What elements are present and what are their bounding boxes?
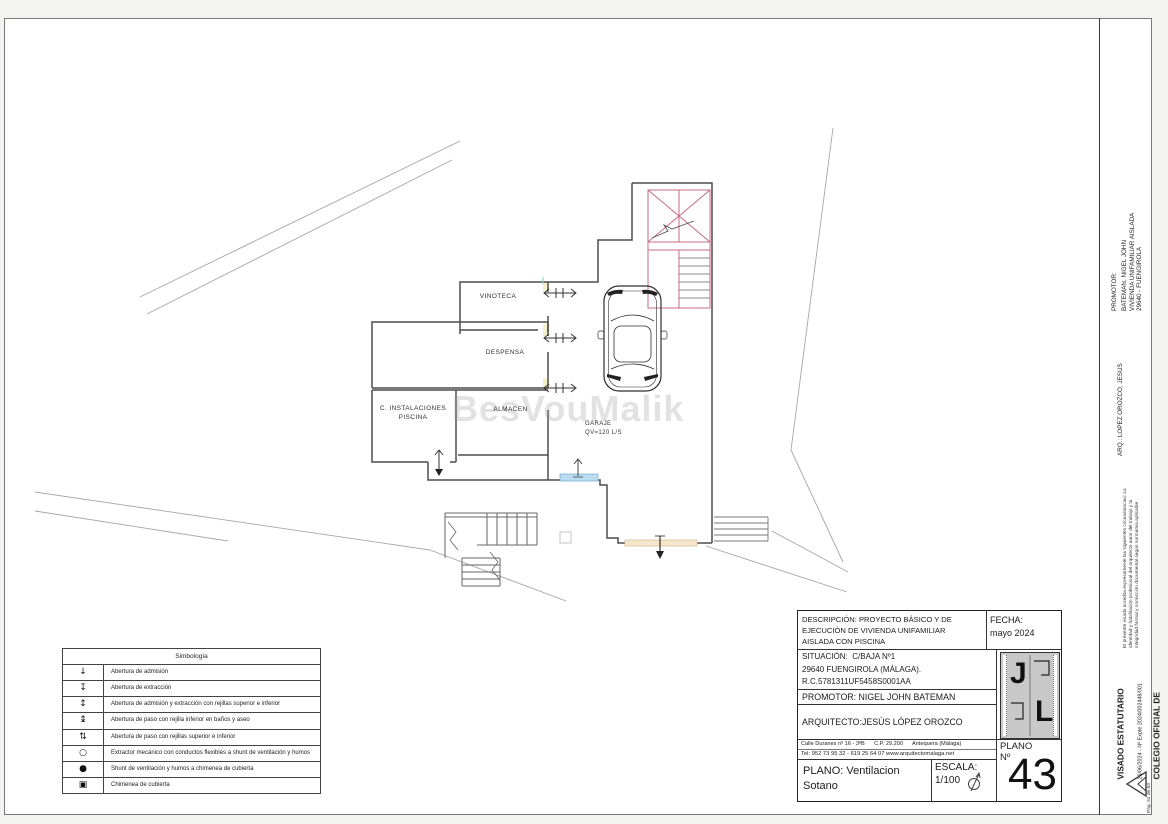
legend-row: ↧Abertura de extracción — [63, 681, 320, 697]
legend-row: ⇅Abertura de paso con rejillas superior … — [63, 730, 320, 746]
divider — [798, 739, 1061, 740]
page-number: Pág. 52 de 63 — [1147, 753, 1155, 813]
situacion-line1: SITUACIÓN: C/BAJA Nº1 — [802, 652, 895, 661]
side-promotor-label: PROMOTOR: — [1111, 121, 1119, 311]
side-architect-block: ARQ.: LOPEZ OROZCO, JESUS — [1117, 296, 1127, 456]
pass-grilles-icon: ⇅ — [63, 730, 104, 745]
vent-symbol-despensa — [544, 333, 576, 343]
site-boundary-lines — [35, 128, 848, 601]
escala-value: 1/100 — [935, 775, 960, 786]
promotor-cell: PROMOTOR: NIGEL JOHN BATEMAN — [802, 692, 955, 702]
divider — [798, 759, 996, 760]
divider — [931, 759, 932, 801]
legend-title: Simbología — [63, 649, 320, 665]
chimney-icon: ▣ — [63, 778, 104, 793]
legend-row: ▣Chimenea de cubierta — [63, 778, 320, 793]
visado-title: VISADO ESTATUTARIO — [1116, 688, 1126, 779]
exterior-stair-bottom — [445, 513, 537, 586]
corridor-arrows — [435, 450, 443, 476]
divider — [798, 704, 996, 705]
legend-table: Simbología ↓Abertura de admisión ↧Abertu… — [62, 648, 321, 794]
situacion-line2: 29640 FUENGIROLA (MÁLAGA). — [802, 665, 921, 674]
jl-architect-logo: J L — [1000, 652, 1060, 739]
studio-address: Calle Duranes nº 16 - 3ºB C.P. 29.200 An… — [801, 741, 961, 747]
plano-name-line1: PLANO: Ventilacion — [803, 765, 900, 777]
shunt-icon: ● — [63, 762, 104, 777]
exterior-steps-right — [714, 517, 768, 541]
plano-name-line2: Sotano — [803, 780, 838, 792]
north-arrow-icon — [964, 771, 986, 795]
description-cell: DESCRIPCIÓN: PROYECTO BÁSICO Y DE EJECUC… — [802, 614, 954, 647]
legend-row: ●Shunt de ventilación y humos a chimenea… — [63, 762, 320, 778]
arquitecto-cell: ARQUITECTO:JESÚS LÓPEZ OROZCO — [802, 717, 963, 727]
logo-letter-l: L — [1035, 695, 1053, 729]
legend-row: ○Extractor mecánico con conductos flexib… — [63, 746, 320, 762]
room-label-vinoteca: VINOTECA — [460, 292, 536, 301]
visado-expte: 26/06/2024 - Nº Expte 2024/002448/001 — [1138, 683, 1144, 779]
room-label-almacen: ALMACEN — [468, 405, 553, 414]
admission-extraction-icon: ↕ — [63, 697, 104, 712]
divider — [986, 611, 987, 649]
mechanical-extractor-icon: ○ — [63, 746, 104, 761]
divider — [798, 649, 1061, 650]
stair-break-line — [652, 221, 694, 238]
plano-number: 43 — [1008, 751, 1057, 799]
studio-phone: Tel: 952 73 95 32 - 619 25 64 07 www.arq… — [801, 751, 954, 757]
room-label-despensa: DESPENSA — [460, 348, 550, 357]
situacion-line3: R.C.5781311UF5458S0001AA — [802, 677, 911, 686]
vent-opening-symbols — [544, 288, 576, 393]
pass-grille-lower-icon: ↨ — [63, 713, 104, 728]
visa-note: El presente visado acredita expresamente… — [1123, 478, 1149, 648]
legend-row: ↨Abertura de paso con rejilla inferior e… — [63, 713, 320, 729]
room-label-garaje: GARAJE QV=120 L/S — [585, 420, 655, 438]
room-label-piscina: C. INSTALACIONES PISCINA — [363, 404, 463, 422]
car — [598, 286, 667, 391]
extraction-arrow-icon: ↧ — [63, 681, 104, 696]
fecha-label: FECHA: — [990, 615, 1023, 625]
admission-arrow-icon: ↓ — [63, 665, 104, 680]
legend-row: ↕Abertura de admisión y extracción con r… — [63, 697, 320, 713]
divider — [798, 689, 996, 690]
logo-letter-j: J — [1010, 657, 1027, 691]
divider — [996, 649, 997, 801]
legend-row: ↓Abertura de admisión — [63, 665, 320, 681]
extraction-opening-orange — [625, 536, 697, 559]
fecha-value: mayo 2024 — [990, 628, 1035, 638]
title-block: DESCRIPCIÓN: PROYECTO BÁSICO Y DE EJECUC… — [797, 610, 1062, 802]
admission-window-blue — [560, 459, 598, 481]
shunt-square — [560, 532, 571, 543]
side-promotor-block: PROMOTOR: BATEMAN, NIGEL JOHN VIVIENDA U… — [1111, 121, 1145, 311]
vent-symbol-vinoteca — [544, 288, 576, 298]
